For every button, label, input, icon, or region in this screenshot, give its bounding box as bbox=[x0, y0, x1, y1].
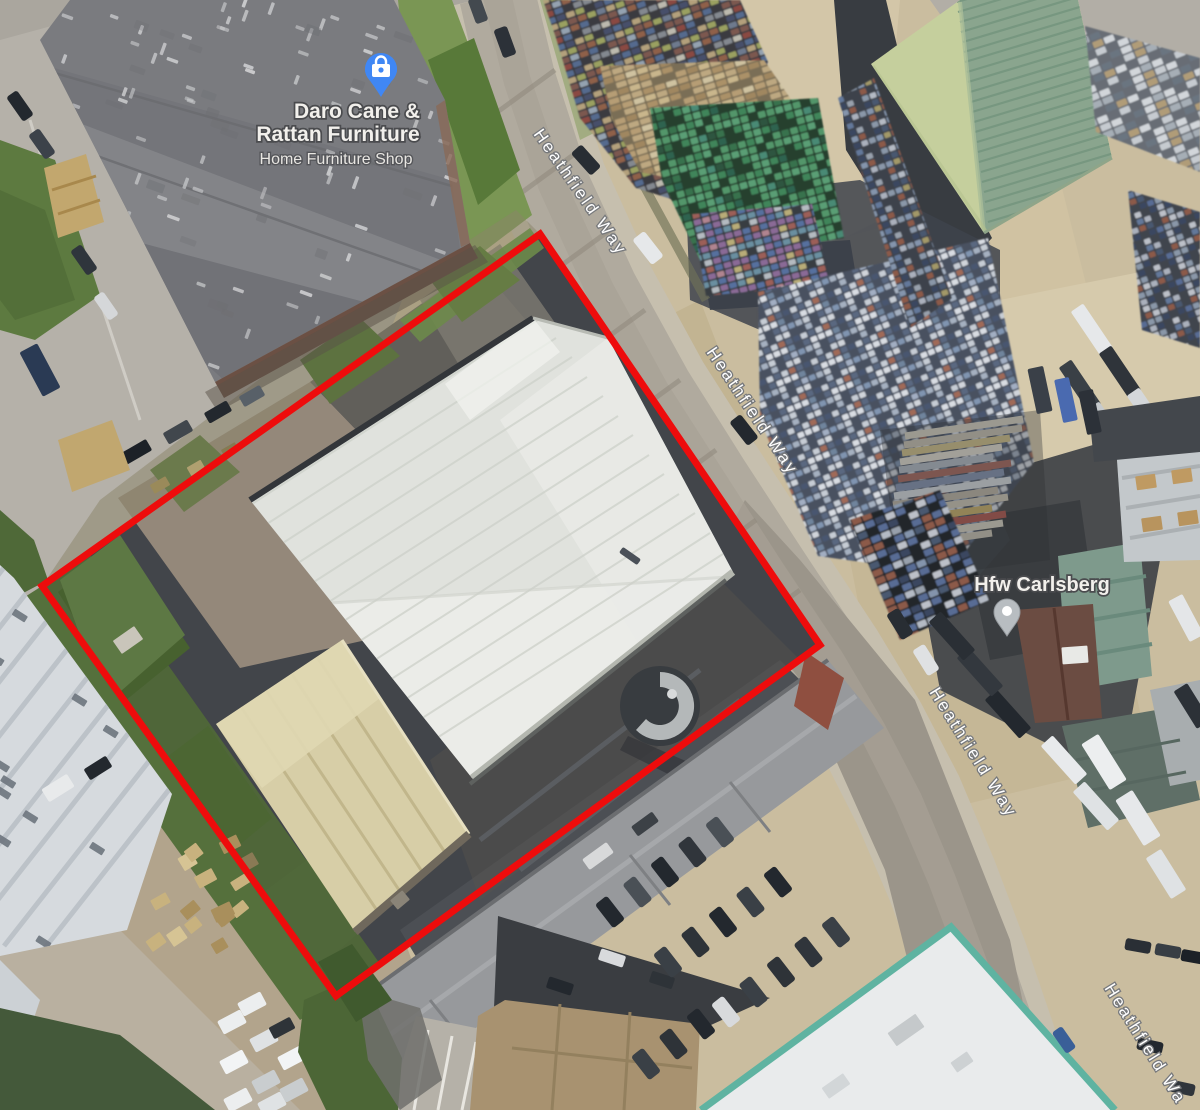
svg-text:Hfw Carlsberg: Hfw Carlsberg bbox=[974, 574, 1110, 596]
svg-text:Home Furniture Shop: Home Furniture Shop bbox=[260, 151, 413, 168]
svg-text:Rattan Furniture: Rattan Furniture bbox=[256, 123, 419, 146]
svg-text:Daro Cane &: Daro Cane & bbox=[294, 100, 420, 123]
